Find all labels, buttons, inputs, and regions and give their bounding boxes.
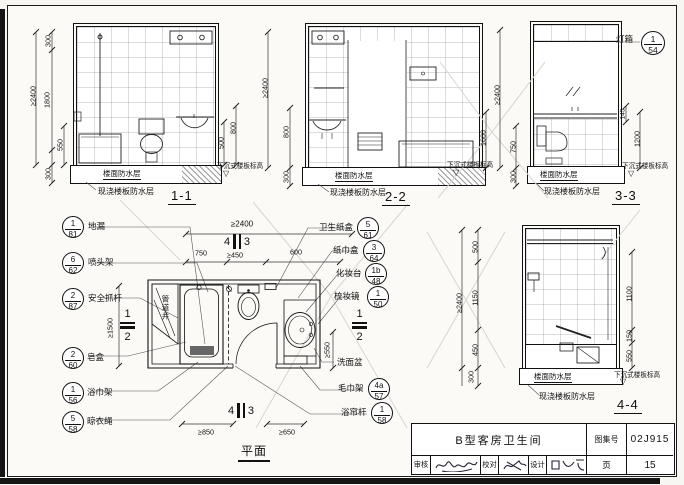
door-opening [349,41,407,168]
level-triangle: ▽ [620,378,626,386]
callout-label-vanity-mirror: 梳妆镜 [334,290,360,302]
dim: 800 [229,122,238,134]
dim: 300 [44,35,53,47]
reviewer-label: 审核 [412,455,430,474]
dim: 750 [509,141,518,153]
lower-tiles [534,119,618,167]
lightbox-label: 灯箱 [616,33,633,45]
dim: 550 [625,350,634,362]
callout-safety-grab-bar: 287 [62,288,84,310]
callout-tissue-box: 364 [363,240,385,262]
dim: 145 [620,108,627,119]
callout-label-safety-grab-bar: 安全抓杆 [88,292,122,304]
callout-lightbox: 1 54 [641,31,665,55]
callout-towel-rack: 4a57 [368,378,390,400]
dim: ≥450 [227,251,243,260]
dim: 1150 [471,290,480,305]
callout-vanity-mirror: 150 [367,286,389,308]
callout-floor-drain: 181 [62,216,84,238]
scan-edge-bottom [0,478,660,484]
dim: 1800 [43,92,52,108]
dim: ≥650 [279,428,295,437]
elevation-3-3-wall [533,24,619,168]
shower-tiles [526,229,616,344]
callout-label-clothesline: 晾衣绳 [87,415,113,427]
dim: 300 [467,371,476,383]
dim: 1600 [479,130,488,146]
page-label: 页 [586,455,626,474]
slab-waterproof-label: 现浇楼板防水层 [539,391,595,402]
dim: 300 [44,168,53,180]
slab-waterproof-label: 现浇楼板防水层 [544,186,600,197]
section-title-4-4: 4-4 [614,397,642,414]
scan-edge-left [0,9,5,477]
slab-waterproof-label: 现浇楼板防水层 [98,186,154,197]
atlas-number-value: 02J915 [626,424,673,455]
drawing-sheet-02j915-p15: { "sheet": { "common": {"floor_wp": "楼面防… [0,0,684,485]
dim: ≥550 [323,342,332,358]
callout-soap-box: 260 [62,347,84,369]
plan-title: 平面 [238,442,270,462]
slab-waterproof-label: 现浇楼板防水层 [330,187,386,198]
callout-label-floor-drain: 地漏 [88,220,105,232]
callout-label-bath-towel-rack: 浴巾架 [87,386,113,398]
dim-total: ≥2400 [261,78,270,98]
callout-label-soap-box: 皂盒 [87,351,104,363]
dim: 750 [195,249,207,258]
dim-total: ≥2400 [455,293,464,313]
callout-clothesline: 558 [62,411,84,433]
section-mark-1-2-left: 12 [120,308,135,343]
elevation-4-4-wall [525,228,617,369]
dim: 800 [282,126,291,138]
dim: 600 [290,248,302,257]
callout-bath-towel-rack: 156 [62,382,84,404]
slab-hatch [438,168,485,185]
level-triangle: ▽ [453,169,459,177]
atlas-number-label: 图集号 [586,424,626,455]
slab-3-3: 楼面防水层 [527,166,625,184]
callout-label-shower-curtain-rod: 浴帘杆 [341,406,367,418]
dim: 500 [217,137,226,149]
title-block: B型客房卫生间 图集号 02J915 审核 校对 设计 页 15 [411,423,675,475]
callout-label-shower-head-rack: 喷头架 [88,256,114,268]
slab-hatch [182,166,221,183]
floor-waterproof-label: 楼面防水层 [534,371,572,383]
section-mark-4-3-bottom: 43 [228,403,254,418]
dim: 1200 [633,131,642,147]
dim: 450 [471,344,480,356]
reviewer-signature [430,455,480,474]
elevation-1-1-wall [76,26,216,167]
dim: 300 [509,171,518,183]
callout-shower-curtain-rod: 158 [371,402,393,424]
floor-waterproof-label: 楼面防水层 [335,170,373,182]
signature-scribble [434,458,478,472]
sunken-band [526,344,616,369]
callout-label-tissue-box: 纸巾盒 [333,244,359,256]
drawing-title: B型客房卫生间 [412,424,586,455]
dim-total: ≥2400 [29,86,38,106]
signature-scribble [501,458,527,472]
lightbox-band [534,25,618,42]
callout-label-toilet-paper-box: 卫生纸盒 [319,221,353,233]
proofreader-signature [498,455,528,474]
dim: 500 [471,241,480,253]
proofreader-label: 校对 [480,455,498,474]
designer-signature [546,455,586,474]
callout-label-towel-rack: 毛巾架 [338,382,364,394]
dim: ≥850 [198,428,214,437]
callout-toilet-paper-box: 561 [357,217,379,239]
section-title-2-2: 2-2 [382,189,410,206]
page-number: 15 [626,455,673,474]
dim: ≥1500 [106,318,115,338]
section-title-3-3: 3-3 [612,188,640,205]
level-triangle: ▽ [223,170,229,178]
dim: 550 [56,139,65,151]
section-title-1-1: 1-1 [168,188,196,205]
dim: 150 [625,330,634,342]
slab-1-1: 楼面防水层 [70,165,222,184]
pipe-shaft-label: 管道井 [160,295,171,321]
dim: 300 [282,171,291,183]
slab-4-4: 楼面防水层 [519,368,623,385]
washbasin-label: 洗面盆 [337,356,363,368]
elevation-2-2-wall [308,26,480,169]
level-triangle: ▽ [628,170,634,178]
callout-vanity-counter: 1b48 [365,263,387,285]
floor-waterproof-label: 楼面防水层 [540,169,578,181]
designer-label: 设计 [528,455,546,474]
signature-scribble [549,458,585,472]
section-mark-1-2-right: 12 [352,308,367,343]
callout-label-vanity-counter: 化妆台 [336,267,362,279]
dim: 1100 [625,286,634,301]
floor-waterproof-label: 楼面防水层 [103,168,141,180]
section-mark-4-3-top: 43 [224,234,250,249]
callout-shower-head-rack: 662 [62,252,84,274]
plan-width-total: ≥2400 [231,220,253,229]
dim-total: ≥2400 [493,85,502,105]
